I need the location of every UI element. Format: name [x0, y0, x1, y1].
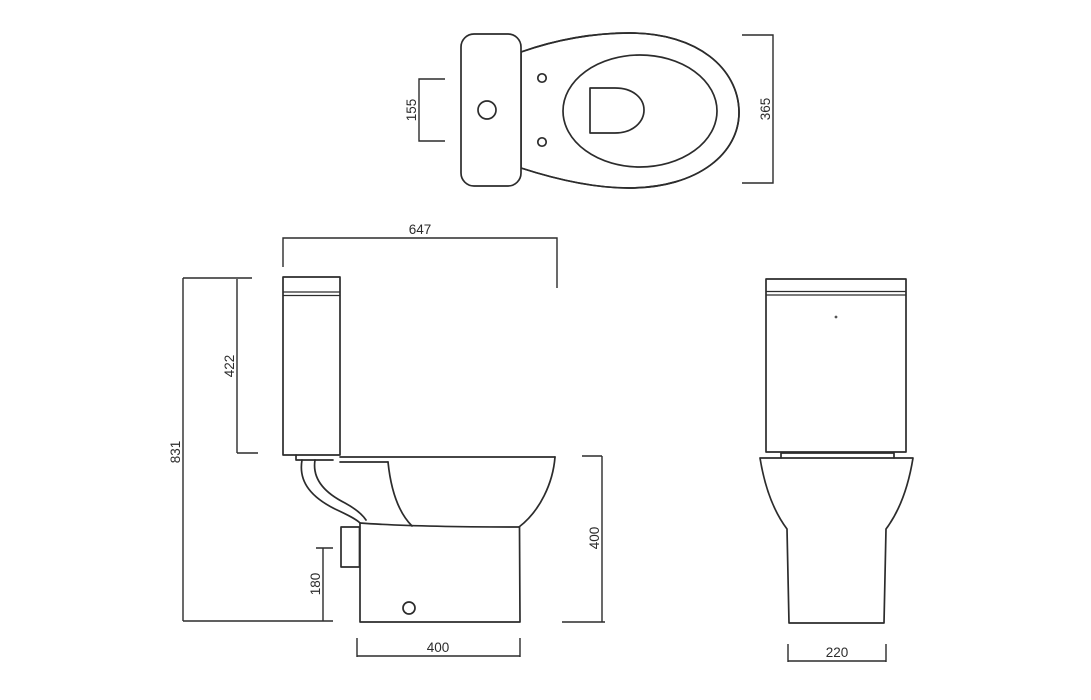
dim-label-cistern-height: 422: [222, 355, 237, 378]
front-view: 220: [760, 279, 913, 662]
toilet-technical-drawing: 155 365 647 422 831: [0, 0, 1091, 700]
dim-label-overall-height: 831: [168, 441, 183, 464]
dim-label-seat-width: 365: [758, 98, 773, 121]
dim-label-cistern-depth: 155: [404, 99, 419, 122]
dim-label-overall-depth: 647: [409, 222, 432, 237]
side-view-flush-bend-outer: [301, 460, 360, 523]
side-view-bowl-underside: [360, 523, 519, 527]
dim-label-base-width: 220: [826, 645, 849, 660]
dim-label-outlet-height: 180: [308, 573, 323, 596]
dim-bracket-cistern-depth: [419, 79, 445, 141]
side-view-cistern: [283, 277, 340, 455]
dim-label-pan-height: 400: [587, 527, 602, 550]
side-view-pedestal: [360, 523, 520, 622]
side-view-bowl-back-curve: [388, 462, 412, 526]
side-view-fixing-hole: [403, 602, 415, 614]
drawing-canvas: 155 365 647 422 831: [0, 0, 1091, 700]
dim-label-base-depth: 400: [427, 640, 450, 655]
top-view: 155 365: [404, 33, 773, 188]
top-view-cistern: [461, 34, 521, 186]
side-view-bowl-front-curve: [519, 457, 555, 527]
dim-line-cistern-height: [237, 279, 258, 453]
front-view-pan-outline: [760, 458, 913, 623]
front-view-cistern: [766, 279, 906, 452]
side-view-waste-outlet: [341, 527, 360, 567]
front-view-surface-mark: [835, 316, 838, 319]
side-view: 647 422 831: [168, 222, 605, 657]
